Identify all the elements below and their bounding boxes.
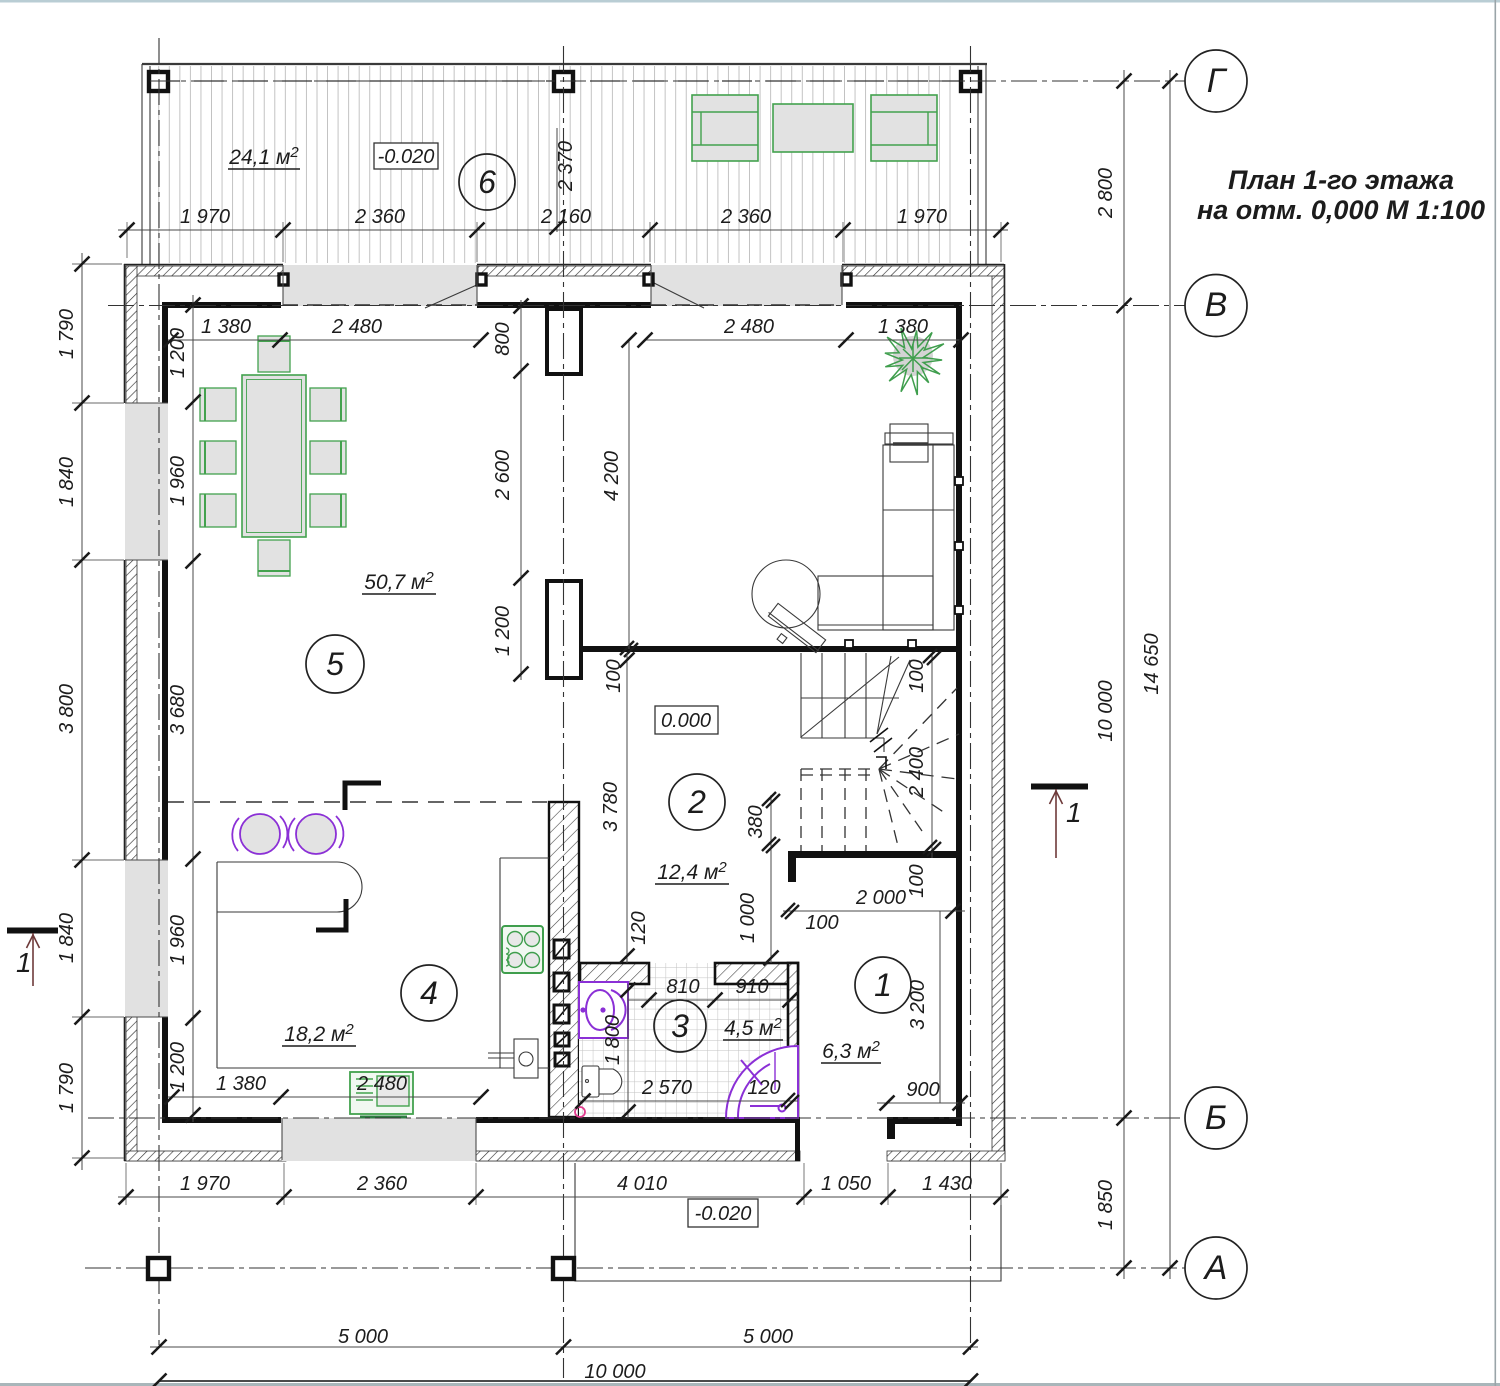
- svg-text:1 200: 1 200: [167, 1042, 189, 1092]
- svg-text:3 800: 3 800: [56, 684, 78, 734]
- svg-text:1 960: 1 960: [167, 915, 189, 965]
- svg-text:2 800: 2 800: [1095, 168, 1117, 219]
- svg-text:1 970: 1 970: [180, 1173, 230, 1195]
- svg-text:1: 1: [16, 947, 32, 978]
- svg-text:1 050: 1 050: [821, 1173, 871, 1195]
- svg-text:100: 100: [906, 864, 928, 897]
- svg-text:Б: Б: [1205, 1099, 1227, 1137]
- svg-text:2 360: 2 360: [720, 206, 771, 228]
- svg-text:1 380: 1 380: [201, 316, 251, 338]
- svg-text:1 960: 1 960: [167, 456, 189, 506]
- svg-text:4: 4: [420, 975, 438, 1011]
- svg-text:1 790: 1 790: [56, 1063, 78, 1113]
- svg-text:12,4 м2: 12,4 м2: [657, 859, 727, 884]
- svg-text:В: В: [1205, 286, 1228, 324]
- svg-text:2 160: 2 160: [540, 206, 591, 228]
- svg-text:120: 120: [628, 911, 650, 944]
- svg-text:на отм. 0,000 М 1:100: на отм. 0,000 М 1:100: [1197, 195, 1485, 225]
- svg-text:5 000: 5 000: [743, 1326, 793, 1348]
- svg-text:6: 6: [478, 164, 496, 200]
- svg-text:1: 1: [1066, 797, 1082, 828]
- svg-text:1 970: 1 970: [180, 206, 230, 228]
- svg-text:0.000: 0.000: [661, 710, 711, 732]
- svg-text:2 480: 2 480: [356, 1073, 407, 1095]
- svg-text:18,2 м2: 18,2 м2: [284, 1021, 354, 1046]
- svg-text:5 000: 5 000: [338, 1326, 388, 1348]
- svg-text:1 840: 1 840: [56, 457, 78, 507]
- svg-text:1 200: 1 200: [492, 606, 514, 656]
- svg-text:24,1 м2: 24,1 м2: [228, 144, 299, 169]
- svg-text:2 360: 2 360: [354, 206, 405, 228]
- svg-text:1 000: 1 000: [737, 893, 759, 943]
- svg-text:1 850: 1 850: [1095, 1180, 1117, 1230]
- svg-text:1 800: 1 800: [602, 1015, 624, 1065]
- svg-text:1 840: 1 840: [56, 913, 78, 963]
- svg-text:План 1-го этажа: План 1-го этажа: [1228, 165, 1454, 195]
- svg-text:-0.020: -0.020: [695, 1203, 752, 1225]
- svg-text:5: 5: [326, 646, 344, 682]
- svg-text:14 650: 14 650: [1141, 633, 1163, 694]
- svg-text:Г: Г: [1207, 62, 1228, 100]
- svg-text:900: 900: [906, 1079, 939, 1101]
- svg-text:800: 800: [492, 322, 514, 355]
- svg-text:2 480: 2 480: [723, 316, 774, 338]
- svg-text:2: 2: [687, 784, 706, 820]
- svg-text:-0.020: -0.020: [378, 146, 435, 168]
- svg-text:4 200: 4 200: [601, 451, 623, 501]
- svg-text:2 360: 2 360: [356, 1173, 407, 1195]
- svg-text:120: 120: [747, 1077, 780, 1099]
- svg-text:1: 1: [874, 967, 892, 1003]
- svg-text:910: 910: [735, 976, 768, 998]
- svg-text:1 970: 1 970: [897, 206, 947, 228]
- svg-text:3: 3: [671, 1008, 689, 1044]
- svg-text:100: 100: [805, 912, 838, 934]
- svg-text:10 000: 10 000: [584, 1361, 645, 1383]
- svg-text:1 380: 1 380: [878, 316, 928, 338]
- svg-text:1 380: 1 380: [216, 1073, 266, 1095]
- svg-text:1 430: 1 430: [922, 1173, 972, 1195]
- svg-text:10 000: 10 000: [1095, 680, 1117, 741]
- svg-text:50,7 м2: 50,7 м2: [364, 569, 434, 594]
- svg-text:3 680: 3 680: [167, 685, 189, 735]
- svg-text:2 370: 2 370: [555, 141, 577, 192]
- svg-text:А: А: [1203, 1249, 1228, 1287]
- svg-text:4 010: 4 010: [617, 1173, 667, 1195]
- svg-text:810: 810: [666, 976, 699, 998]
- svg-text:3 780: 3 780: [600, 782, 622, 832]
- svg-text:2 000: 2 000: [855, 887, 906, 909]
- svg-text:1 790: 1 790: [56, 309, 78, 359]
- svg-text:1 200: 1 200: [167, 328, 189, 378]
- svg-text:2 600: 2 600: [492, 450, 514, 501]
- svg-text:2 480: 2 480: [331, 316, 382, 338]
- svg-text:100: 100: [906, 659, 928, 692]
- svg-text:2 400: 2 400: [906, 747, 928, 798]
- svg-text:380: 380: [745, 805, 767, 838]
- svg-text:2 570: 2 570: [641, 1077, 692, 1099]
